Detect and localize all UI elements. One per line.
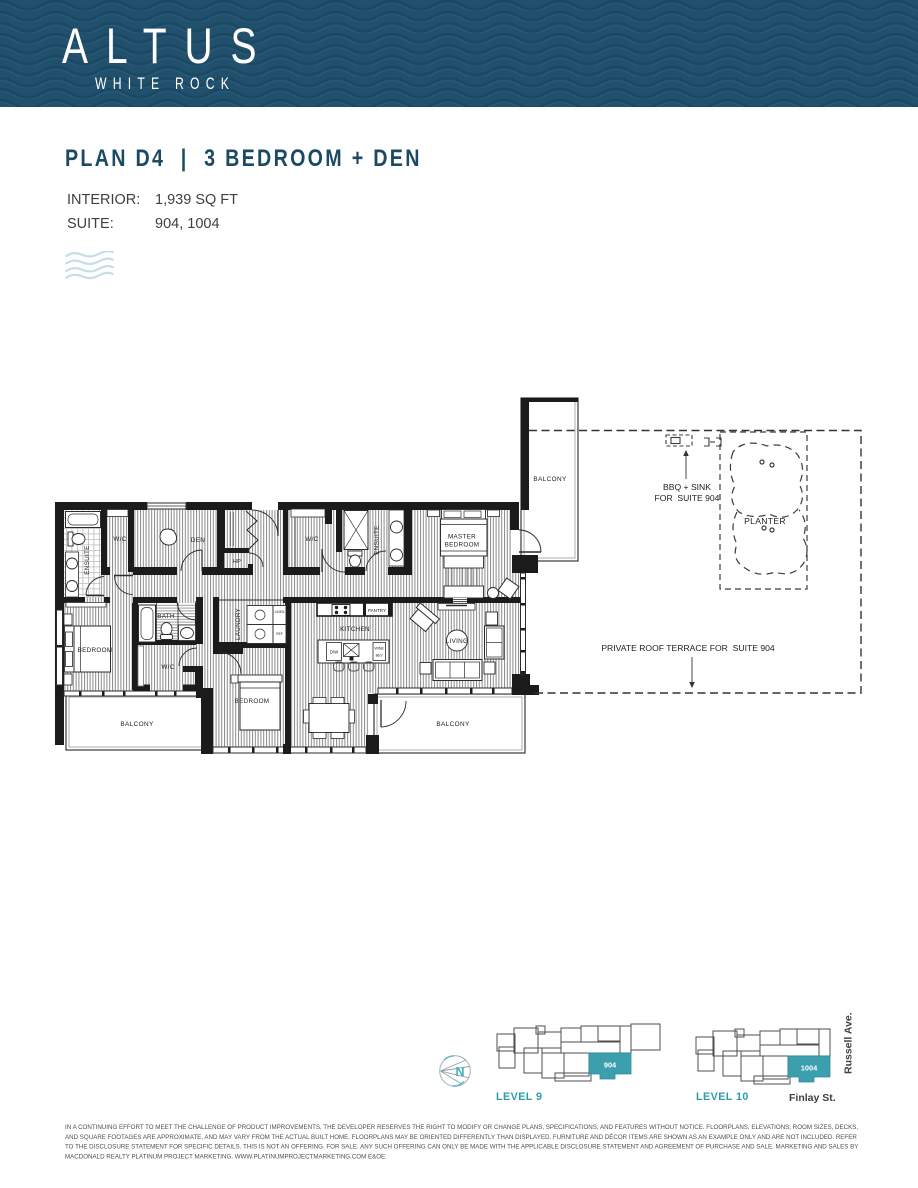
svg-text:WINE: WINE	[375, 647, 385, 651]
svg-text:PRIVATE ROOF TERRACE FOR SUIT: PRIVATE ROOF TERRACE FOR SUITE 904	[601, 643, 775, 653]
svg-text:BATH: BATH	[157, 613, 175, 620]
svg-text:AND SQUARE FOOTAGES ARE APPROX: AND SQUARE FOOTAGES ARE APPROXIMATE, AND…	[65, 1134, 857, 1141]
svg-text:PLANTER: PLANTER	[744, 516, 786, 526]
svg-text:N: N	[455, 1065, 464, 1079]
svg-text:HP: HP	[233, 559, 241, 565]
svg-text:MASTER: MASTER	[448, 534, 476, 541]
svg-text:KITCHEN: KITCHEN	[340, 626, 370, 633]
svg-text:LINEN: LINEN	[275, 610, 285, 614]
svg-text:W/C: W/C	[161, 664, 174, 671]
svg-text:PANTRY: PANTRY	[368, 608, 386, 613]
svg-text:BALCONY: BALCONY	[436, 721, 470, 728]
svg-text:LAUNDRY: LAUNDRY	[235, 607, 242, 640]
svg-text:BEDROOM: BEDROOM	[78, 647, 113, 654]
svg-text:BBQ + SINK: BBQ + SINK	[663, 482, 711, 492]
svg-text:D/W: D/W	[330, 650, 339, 655]
svg-text:W/C: W/C	[113, 536, 126, 543]
svg-text:1004: 1004	[801, 1064, 818, 1073]
svg-text:LEVEL 9: LEVEL 9	[496, 1091, 542, 1103]
svg-text:W/C: W/C	[305, 536, 318, 543]
svg-text:MACDONALD REALTY PLATINUM PROJ: MACDONALD REALTY PLATINUM PROJECT MARKET…	[65, 1153, 387, 1160]
svg-text:BEV: BEV	[376, 654, 384, 658]
svg-text:BEDROOM: BEDROOM	[235, 698, 270, 705]
svg-text:DEN: DEN	[191, 537, 205, 544]
svg-text:BALCONY: BALCONY	[533, 476, 567, 483]
svg-text:BALCONY: BALCONY	[120, 721, 154, 728]
svg-text:Finlay St.: Finlay St.	[789, 1092, 836, 1104]
svg-text:ENSUITE: ENSUITE	[84, 545, 91, 574]
svg-text:LEVEL 10: LEVEL 10	[696, 1091, 749, 1103]
svg-text:TO THE DISCLOSURE STATEMENT FO: TO THE DISCLOSURE STATEMENT FOR SPECIFIC…	[65, 1144, 858, 1151]
svg-text:IN A CONTINUING EFFORT TO MEET: IN A CONTINUING EFFORT TO MEET THE CHALL…	[65, 1124, 858, 1131]
svg-text:FOR SUITE 904: FOR SUITE 904	[655, 493, 720, 503]
svg-text:LIVING: LIVING	[446, 638, 468, 645]
svg-text:ENSUITE: ENSUITE	[374, 525, 381, 554]
svg-text:904: 904	[604, 1061, 617, 1070]
svg-text:BEDROOM: BEDROOM	[445, 542, 480, 549]
svg-text:REF: REF	[276, 632, 283, 636]
svg-text:Russell Ave.: Russell Ave.	[843, 1012, 855, 1074]
